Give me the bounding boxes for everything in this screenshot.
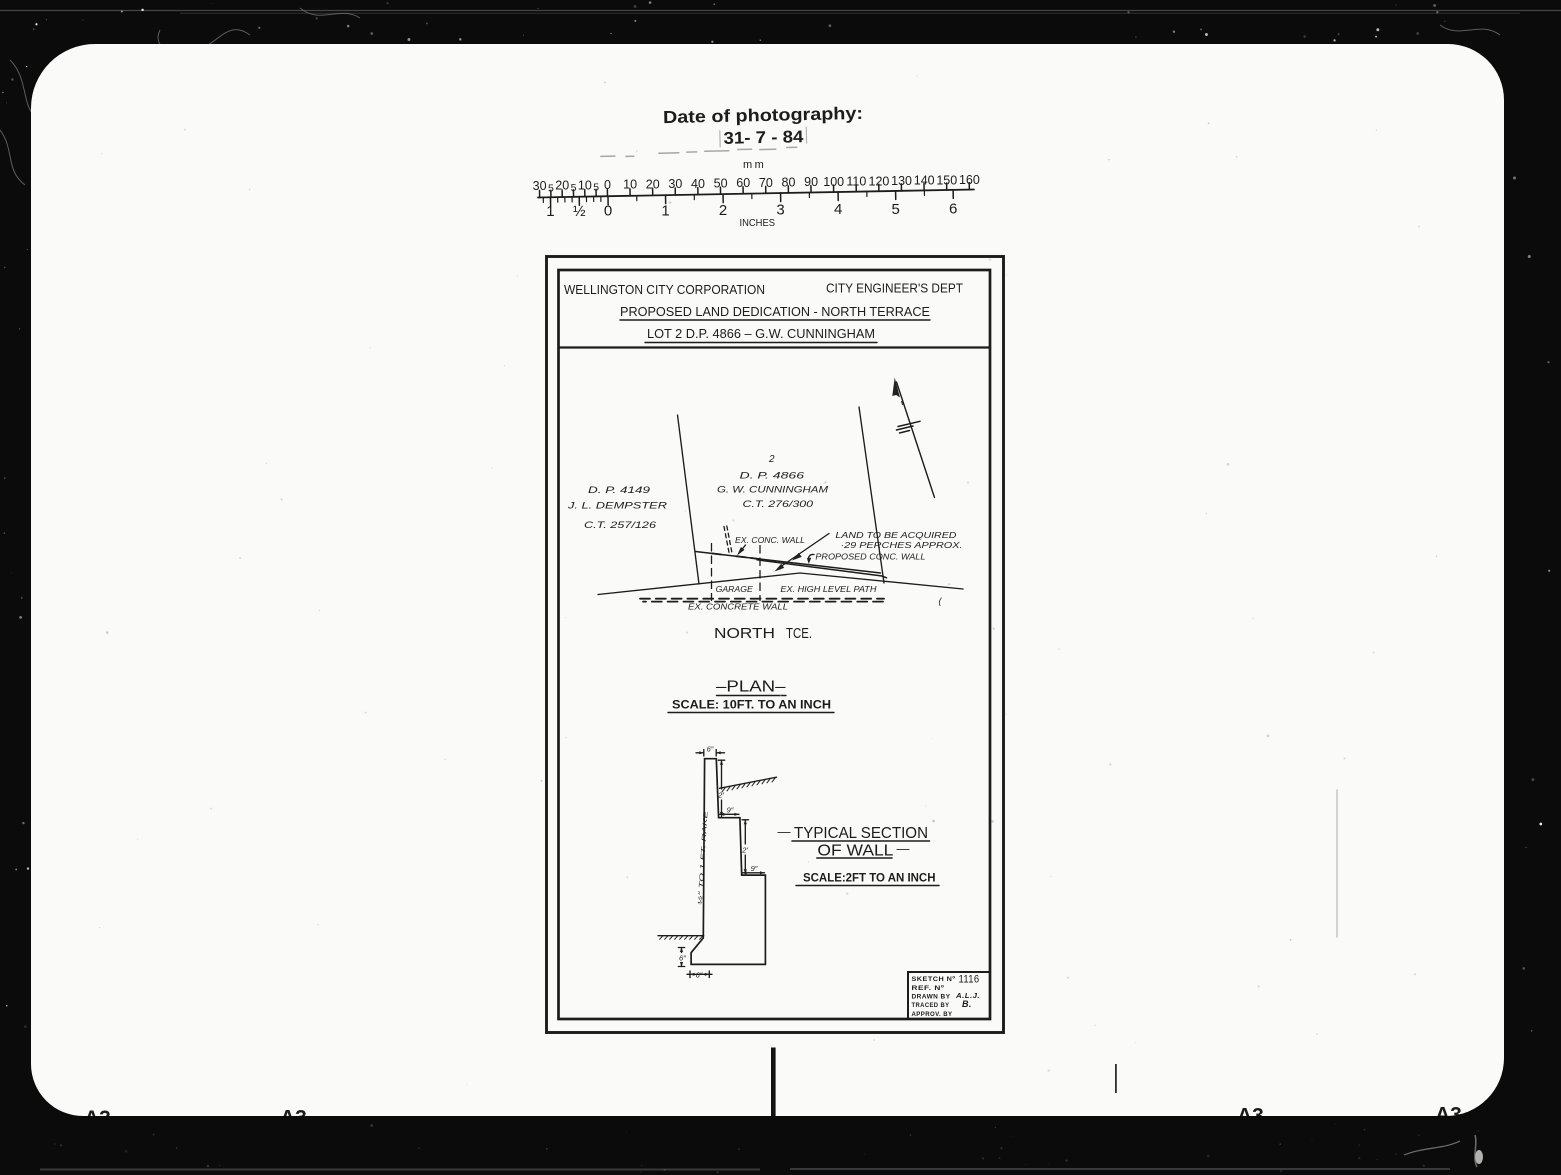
svg-text:½″ TO 1 FT. RAKE: ½″ TO 1 FT. RAKE xyxy=(697,811,710,905)
svg-text:40: 40 xyxy=(691,177,705,191)
svg-text:5: 5 xyxy=(548,182,554,194)
svg-text:3: 3 xyxy=(776,202,784,219)
svg-text:31- 7 - 84: 31- 7 - 84 xyxy=(723,127,804,148)
svg-text:LAND TO BE ACQUIRED: LAND TO BE ACQUIRED xyxy=(835,530,956,540)
svg-text:80: 80 xyxy=(782,176,796,190)
svg-text:5: 5 xyxy=(571,182,577,194)
svg-text:6″: 6″ xyxy=(696,971,703,980)
svg-text:C.T. 257/126: C.T. 257/126 xyxy=(584,520,657,530)
svg-text:D. P. 4149: D. P. 4149 xyxy=(588,485,650,495)
svg-text:2: 2 xyxy=(768,454,775,465)
svg-text:EX. CONCRETE WALL: EX. CONCRETE WALL xyxy=(688,602,788,612)
svg-text:J. L. DEMPSTER: J. L. DEMPSTER xyxy=(567,501,668,511)
svg-text:150: 150 xyxy=(936,173,957,187)
svg-text:mm: mm xyxy=(743,159,766,171)
svg-text:WELLINGTON CITY CORPORATION: WELLINGTON CITY CORPORATION xyxy=(564,283,765,297)
svg-text:60: 60 xyxy=(736,176,750,190)
svg-text:DRAWN BY: DRAWN BY xyxy=(912,995,951,1001)
svg-text:APPROV. BY: APPROV. BY xyxy=(912,1012,953,1018)
svg-text:70: 70 xyxy=(759,176,773,190)
svg-text:C.T. 276/300: C.T. 276/300 xyxy=(743,499,815,509)
svg-text:2: 2 xyxy=(719,202,727,219)
svg-text:GARAGE: GARAGE xyxy=(716,584,754,594)
svg-text:110: 110 xyxy=(846,175,866,189)
svg-text:—: — xyxy=(778,824,791,839)
svg-text:10: 10 xyxy=(623,178,637,192)
svg-text:B.: B. xyxy=(962,999,972,1009)
svg-text:120: 120 xyxy=(869,174,890,188)
svg-text:9″: 9″ xyxy=(751,864,758,873)
svg-text:LOT 2 D.P. 4866 – G.W. CUNNING: LOT 2 D.P. 4866 – G.W. CUNNINGHAM xyxy=(647,326,875,341)
svg-text:TYPICAL SECTION: TYPICAL SECTION xyxy=(794,825,928,842)
svg-text:100: 100 xyxy=(823,175,844,189)
svg-text:PROPOSED CONC. WALL: PROPOSED CONC. WALL xyxy=(815,551,925,561)
svg-text:90: 90 xyxy=(804,175,818,189)
svg-text:50: 50 xyxy=(714,176,728,190)
svg-text:1: 1 xyxy=(661,202,669,219)
svg-text:½: ½ xyxy=(573,203,586,220)
svg-text:–PLAN–: –PLAN– xyxy=(716,679,786,696)
svg-text:REF. Nº: REF. Nº xyxy=(912,986,946,992)
svg-text:CITY ENGINEER'S DEPT: CITY ENGINEER'S DEPT xyxy=(826,282,963,296)
svg-text:20: 20 xyxy=(555,179,569,193)
svg-text:SKETCH Nº: SKETCH Nº xyxy=(912,977,956,983)
svg-text:G. W. CUNNINGHAM: G. W. CUNNINGHAM xyxy=(717,485,828,495)
svg-text:EX. HIGH LEVEL PATH: EX. HIGH LEVEL PATH xyxy=(780,584,876,594)
svg-text:20: 20 xyxy=(646,177,660,191)
svg-text:TRACED BY: TRACED BY xyxy=(912,1003,950,1009)
svg-text:—: — xyxy=(897,841,910,856)
svg-text:5: 5 xyxy=(593,182,599,194)
svg-text:0: 0 xyxy=(604,178,611,192)
svg-text:NORTH: NORTH xyxy=(714,626,775,642)
svg-text:·29 PERCHES APPROX.: ·29 PERCHES APPROX. xyxy=(841,540,963,550)
svg-text:6: 6 xyxy=(949,201,957,218)
svg-text:D. P. 4866: D. P. 4866 xyxy=(740,471,806,481)
svg-text:130: 130 xyxy=(891,174,912,188)
svg-text:PROPOSED LAND DEDICATION - NOR: PROPOSED LAND DEDICATION - NORTH TERRACE xyxy=(620,304,930,319)
svg-text:6″: 6″ xyxy=(707,745,714,754)
svg-text:INCHES: INCHES xyxy=(740,217,776,229)
svg-text:160: 160 xyxy=(959,173,980,187)
svg-text:EX. CONC. WALL: EX. CONC. WALL xyxy=(735,535,805,545)
svg-text:TCE.: TCE. xyxy=(786,626,812,642)
svg-text:6″: 6″ xyxy=(679,954,686,963)
svg-text:Date of photography:: Date of photography: xyxy=(663,103,863,127)
svg-text:SCALE: 10FT. TO AN INCH: SCALE: 10FT. TO AN INCH xyxy=(672,698,831,712)
svg-text:30: 30 xyxy=(533,179,547,193)
svg-text:OF WALL: OF WALL xyxy=(817,843,893,860)
svg-text:(: ( xyxy=(939,596,943,606)
svg-text:10: 10 xyxy=(578,178,592,192)
svg-text:140: 140 xyxy=(914,174,935,188)
svg-text:5: 5 xyxy=(891,201,899,218)
svg-text:2′: 2′ xyxy=(741,846,748,855)
svg-text:4: 4 xyxy=(834,201,842,218)
svg-text:SCALE:2FT TO AN INCH: SCALE:2FT TO AN INCH xyxy=(803,871,936,885)
svg-text:1116: 1116 xyxy=(959,974,980,986)
svg-text:30: 30 xyxy=(668,177,682,191)
svg-text:0: 0 xyxy=(604,203,612,220)
svg-text:2′: 2′ xyxy=(717,791,724,800)
svg-text:9″: 9″ xyxy=(727,806,734,815)
svg-text:1: 1 xyxy=(546,203,554,220)
